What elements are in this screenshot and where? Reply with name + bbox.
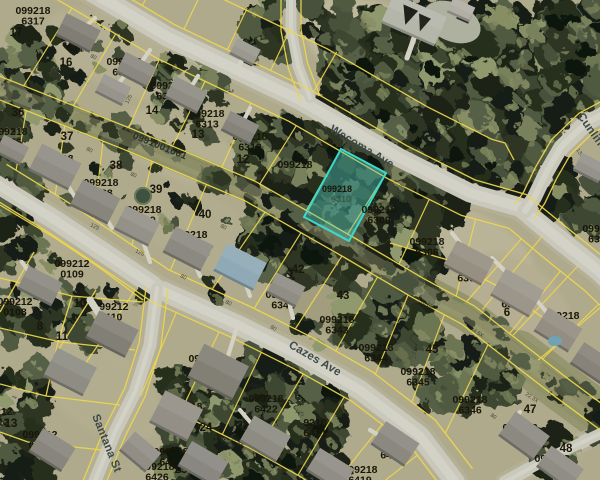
svg-text:24: 24 (200, 422, 213, 434)
svg-text:47: 47 (524, 404, 537, 416)
svg-text:17: 17 (10, 27, 23, 39)
svg-text:099218: 099218 (322, 184, 352, 194)
svg-text:42: 42 (292, 264, 305, 276)
svg-text:38: 38 (110, 160, 123, 172)
svg-text:6310: 6310 (331, 194, 351, 204)
svg-text:12: 12 (237, 154, 250, 166)
svg-text:40: 40 (199, 209, 212, 221)
svg-text:37: 37 (61, 131, 74, 143)
svg-text:16: 16 (60, 57, 73, 69)
svg-text:92186421: 92186421 (303, 417, 327, 440)
svg-text:8: 8 (37, 321, 44, 333)
svg-text:13: 13 (5, 418, 18, 430)
svg-text:43: 43 (337, 290, 350, 302)
svg-text:11: 11 (56, 331, 69, 343)
svg-text:36: 36 (12, 107, 25, 119)
svg-text:10: 10 (74, 298, 87, 310)
svg-text:14: 14 (146, 105, 159, 117)
svg-text:13: 13 (192, 129, 205, 141)
svg-text:45: 45 (426, 344, 439, 356)
svg-text:6: 6 (504, 307, 510, 319)
